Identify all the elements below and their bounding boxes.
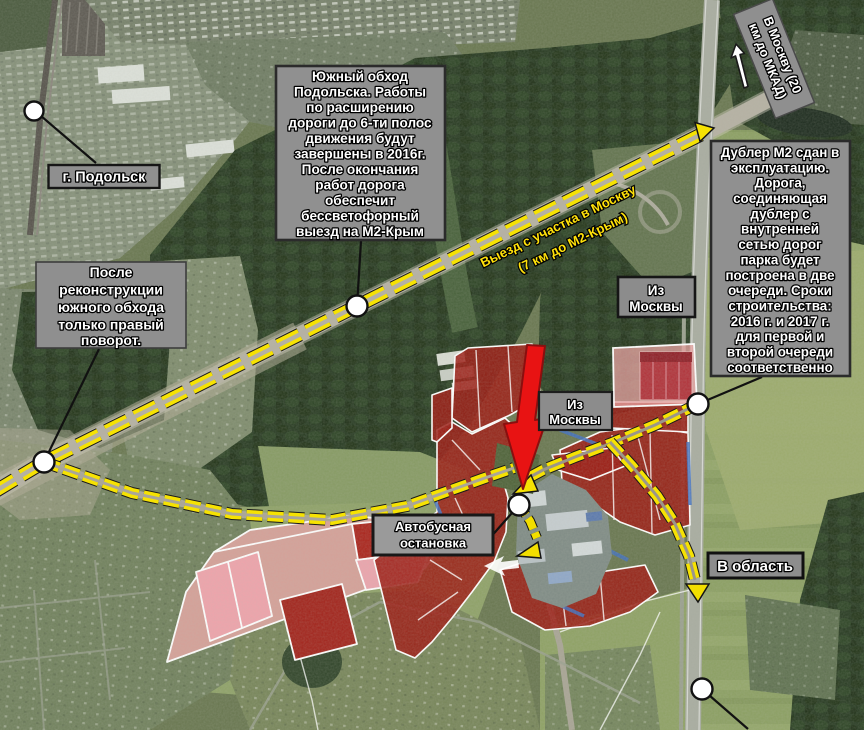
svg-text:завершены в 2016г.: завершены в 2016г. — [294, 147, 425, 162]
svg-text:внутренней: внутренней — [741, 222, 819, 237]
svg-text:дороги до 6-ти полос: дороги до 6-ти полос — [288, 116, 432, 131]
svg-text:бессветофорный: бессветофорный — [301, 209, 419, 224]
svg-text:поворот.: поворот. — [81, 332, 141, 348]
svg-text:2016 г. и 2017 г.: 2016 г. и 2017 г. — [731, 314, 830, 329]
svg-text:эксплуатацию.: эксплуатацию. — [731, 160, 829, 175]
svg-text:только правый: только правый — [58, 317, 164, 333]
svg-text:реконструкции: реконструкции — [59, 282, 163, 298]
svg-text:для первой и: для первой и — [736, 329, 825, 344]
svg-text:построена в две: построена в две — [725, 268, 834, 283]
svg-text:сетью дорог: сетью дорог — [738, 237, 822, 252]
svg-text:движения будут: движения будут — [305, 131, 415, 146]
svg-text:Дорога,: Дорога, — [755, 176, 806, 191]
svg-text:второй очереди: второй очереди — [727, 345, 833, 360]
svg-text:южного обхода: южного обхода — [58, 299, 164, 315]
svg-text:парка будет: парка будет — [740, 252, 820, 267]
svg-text:работ дорога: работ дорога — [315, 178, 405, 193]
svg-text:Дублер М2 сдан в: Дублер М2 сдан в — [721, 145, 840, 160]
svg-text:дублер с: дублер с — [750, 206, 810, 221]
svg-text:соответственно: соответственно — [727, 360, 833, 375]
svg-text:остановка: остановка — [400, 536, 467, 551]
svg-text:по расширению: по расширению — [306, 100, 414, 115]
svg-text:В область: В область — [717, 558, 793, 575]
svg-text:После окончания: После окончания — [302, 162, 419, 177]
svg-text:соединяющая: соединяющая — [733, 191, 827, 206]
svg-text:Подольска. Работы: Подольска. Работы — [294, 85, 426, 100]
svg-text:Автобусная: Автобусная — [395, 519, 471, 534]
svg-text:г. Подольск: г. Подольск — [63, 170, 147, 186]
svg-text:обеспечит: обеспечит — [325, 193, 395, 208]
svg-text:Из: Из — [648, 283, 665, 298]
svg-text:выезд на М2-Крым: выезд на М2-Крым — [296, 224, 424, 239]
svg-text:Южный обход: Южный обход — [312, 69, 408, 84]
svg-text:Москвы: Москвы — [549, 412, 600, 427]
svg-text:строительства:: строительства: — [728, 299, 831, 314]
svg-text:Из: Из — [567, 397, 583, 412]
svg-text:Москвы: Москвы — [629, 299, 682, 314]
svg-text:очереди. Сроки: очереди. Сроки — [728, 283, 832, 298]
svg-text:После: После — [90, 264, 133, 280]
